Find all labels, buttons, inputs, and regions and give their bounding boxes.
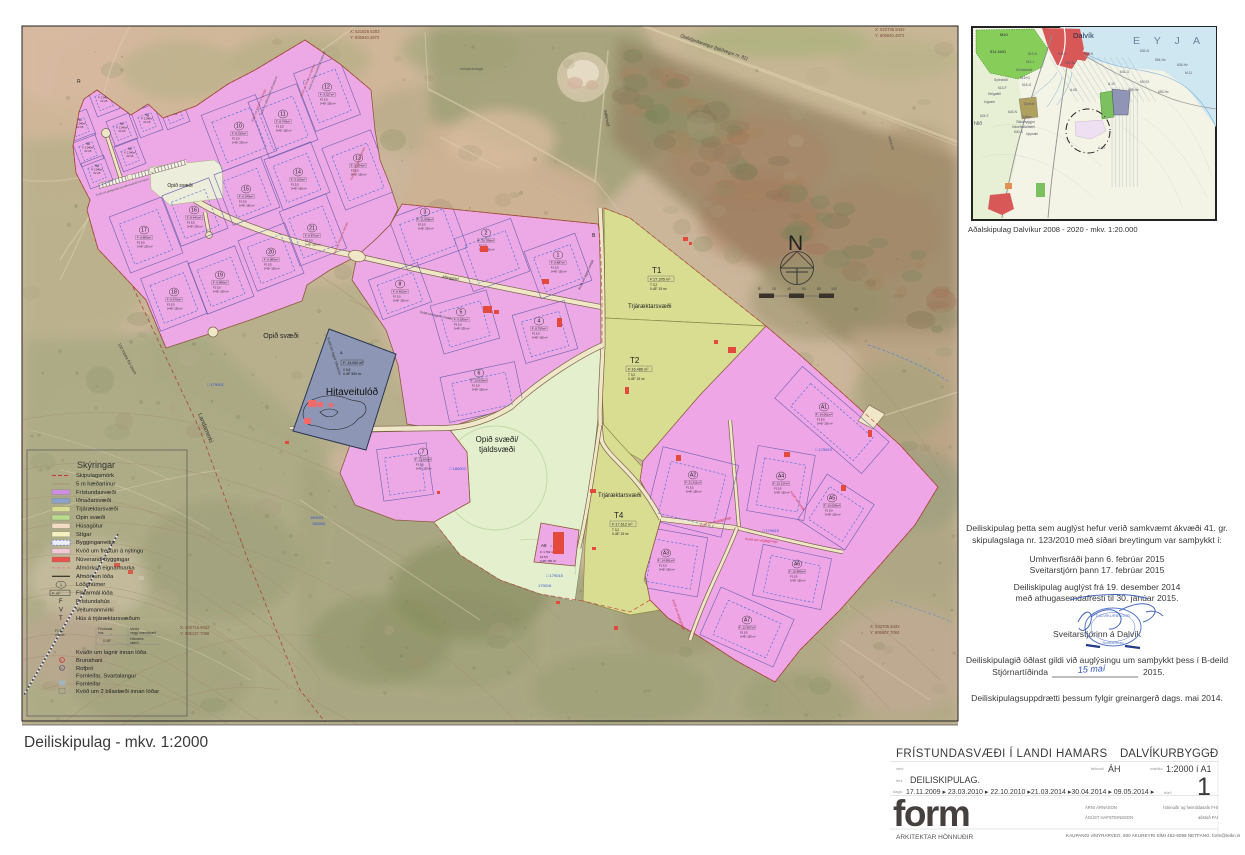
svg-text:F2 4,5: F2 4,5: [119, 130, 126, 133]
svg-text:Skíðastaðir: Skíðastaðir: [1016, 67, 1033, 72]
svg-text:F: 8.750m²: F: 8.750m²: [532, 327, 547, 331]
svg-text:0-45° 150 m²: 0-45° 150 m²: [213, 290, 229, 294]
svg-text:A.10: A.10: [1098, 146, 1105, 150]
svg-text:179016: 179016: [538, 583, 552, 588]
svg-text:0-45° 230 m²: 0-45° 230 m²: [418, 227, 434, 231]
svg-text:0-45° 150 m²: 0-45° 150 m²: [393, 299, 409, 303]
svg-text:515+O: 515+O: [1020, 76, 1030, 80]
svg-text:F1 5,5: F1 5,5: [740, 631, 748, 635]
svg-text:Trjáræktarsvæði: Trjáræktarsvæði: [628, 303, 671, 310]
svg-text:F: 10.786m²: F: 10.786m²: [478, 239, 494, 243]
svg-text:X: 502715.9432: X: 502715.9432: [180, 625, 210, 630]
svg-text:0-45° 150 m²: 0-45° 150 m²: [264, 267, 280, 271]
svg-text:□ 179613: □ 179613: [815, 447, 833, 452]
svg-text:völ hm: völ hm: [55, 633, 65, 637]
svg-text:F2 4,5: F2 4,5: [85, 150, 92, 153]
svg-text:hönnuðir og heimildasafn FHI: hönnuðir og heimildasafn FHI: [1163, 805, 1218, 810]
svg-text:F1 5,5: F1 5,5: [393, 295, 401, 299]
svg-text:0-45° 230 m²: 0-45° 230 m²: [232, 141, 248, 145]
svg-text:F1 5,5: F1 5,5: [551, 266, 559, 270]
svg-text:MY.03: MY.03: [1140, 80, 1149, 84]
svg-text:R: R: [77, 79, 81, 85]
svg-text:F: 6.989m²: F: 6.989m²: [213, 281, 228, 285]
svg-text:□ 179001: □ 179001: [207, 382, 225, 387]
svg-text:9c: 9c: [78, 118, 82, 122]
svg-text:ARKITEKTAR HÖNNUÐIR: ARKITEKTAR HÖNNUÐIR: [896, 833, 973, 841]
svg-text:655-Hv: 655-Hv: [1128, 88, 1139, 92]
svg-text:Dyrhóll: Dyrhóll: [1024, 102, 1035, 106]
svg-text:F:27.205 m²: F:27.205 m²: [650, 278, 671, 282]
svg-text:F: 21.411m²: F: 21.411m²: [685, 481, 701, 485]
svg-text:með athugasemdafresti til 30.: með athugasemdafresti til 30. janúar 201…: [1016, 593, 1179, 603]
svg-text:Afmörkun eignarmarka: Afmörkun eignarmarka: [76, 565, 135, 571]
svg-text:KAUPANGI v/MÝRARVEG, 600 AKURE: KAUPANGI v/MÝRARVEG, 600 AKUREYRI SÍMI 4…: [1066, 832, 1241, 838]
svg-text:Hitaveitulóð: Hitaveitulóð: [326, 386, 379, 398]
svg-text:ÁRNI ÁRNASON: ÁRNI ÁRNASON: [1085, 805, 1117, 810]
svg-text:A5: A5: [829, 496, 835, 502]
svg-text:F2 4,5: F2 4,5: [144, 121, 151, 124]
svg-text:9e: 9e: [120, 122, 124, 126]
svg-text:form: form: [893, 793, 969, 834]
svg-text:X: 533705.9432: X: 533705.9432: [870, 624, 900, 629]
svg-text:Veitumannvirki: Veitumannvirki: [76, 607, 114, 613]
svg-text:Stjórnartíðinda: Stjórnartíðinda: [992, 667, 1048, 677]
svg-text:A3: A3: [663, 551, 669, 557]
svg-text:Skýringar: Skýringar: [77, 460, 115, 470]
svg-text:3: 3: [424, 210, 427, 216]
svg-text:F: 14.981m²: F: 14.981m²: [658, 559, 674, 563]
svg-text:blað: blað: [1164, 790, 1172, 795]
svg-text:ÁH: ÁH: [1108, 764, 1121, 774]
svg-text:F: 10.880m²: F: 10.880m²: [789, 570, 805, 574]
svg-text:18: 18: [171, 290, 177, 296]
svg-text:636-Hv: 636-Hv: [1177, 63, 1188, 67]
svg-text:Fornleifar, Svartalangur: Fornleifar, Svartalangur: [76, 674, 136, 680]
svg-text:Trjáræktarsvæði: Trjáræktarsvæði: [76, 506, 118, 513]
svg-text:17: 17: [141, 228, 147, 234]
svg-text:16: 16: [191, 208, 197, 214]
svg-text:0-45° 230 m²: 0-45° 230 m²: [137, 245, 153, 249]
svg-text:9e: 9e: [128, 147, 132, 151]
svg-text:0-45° 150 m²: 0-45° 150 m²: [239, 204, 255, 208]
svg-text:F: 14.000 m²: F: 14.000 m²: [343, 361, 364, 365]
svg-text:0-45° 150 m²: 0-45° 150 m²: [740, 635, 756, 639]
svg-text:20: 20: [268, 250, 274, 256]
svg-text:F: 8.860m²: F: 8.860m²: [137, 236, 152, 240]
svg-text:613-F: 613-F: [998, 86, 1007, 90]
svg-text:641-G: 641-G: [1120, 70, 1130, 74]
svg-text:15 maí: 15 maí: [1077, 663, 1107, 675]
svg-text:0-45° 150 m²: 0-45° 150 m²: [817, 422, 833, 426]
svg-text:DALVÍKURBYGGÐ: DALVÍKURBYGGÐ: [1120, 747, 1218, 760]
svg-text:Opin svæði: Opin svæði: [76, 514, 105, 521]
svg-text:Frístundahús: Frístundahús: [76, 599, 110, 605]
svg-text:5: 5: [460, 310, 463, 316]
svg-text:Y: 605940.4972: Y: 605940.4972: [350, 35, 380, 40]
svg-text:F:16.486 m²: F:16.486 m²: [628, 368, 649, 372]
svg-text:19: 19: [217, 273, 223, 279]
svg-text:skipulagslaga nr. 123/2010 með: skipulagslaga nr. 123/2010 með síðari br…: [972, 535, 1222, 545]
svg-text:Sveitarfélag: Sveitarfélag: [1102, 640, 1123, 645]
svg-text:0-45° 150 m²: 0-45° 150 m²: [305, 243, 321, 247]
svg-text:tjaldsvæði: tjaldsvæði: [479, 445, 515, 454]
svg-text:20: 20: [772, 287, 776, 291]
svg-text:F2 5,5: F2 5,5: [454, 323, 462, 327]
svg-text:F1 5,5: F1 5,5: [416, 463, 424, 467]
svg-text:0: 0: [758, 287, 760, 291]
svg-text:21: 21: [309, 226, 315, 232]
svg-text:F2 5,5: F2 5,5: [418, 223, 426, 227]
svg-text:F2 4,5: F2 4,5: [94, 172, 101, 175]
svg-text:F: 5.105m²: F: 5.105m²: [291, 178, 306, 182]
svg-text:T4: T4: [614, 511, 624, 520]
svg-text:Rotþró: Rotþró: [76, 666, 93, 672]
svg-text:1: 1: [557, 253, 560, 259]
svg-text:8: 8: [399, 282, 402, 288]
svg-text:Sakka: Sakka: [1022, 115, 1031, 119]
svg-text:1: 1: [60, 583, 62, 587]
svg-text:F2 4,5: F2 4,5: [77, 126, 84, 129]
svg-text:Deiliskipulag þetta sem auglýs: Deiliskipulag þetta sem auglýst hefur ve…: [966, 523, 1228, 533]
svg-text:632-N: 632-N: [1140, 49, 1150, 53]
svg-text:Flatarmál lóða: Flatarmál lóða: [76, 590, 114, 597]
svg-text:Öldubryggjur: Öldubryggjur: [1016, 120, 1036, 124]
svg-text:F1 5,5: F1 5,5: [472, 384, 480, 388]
svg-text:Helgafell: Helgafell: [988, 92, 1001, 96]
svg-text:DEILISKIPULAG.: DEILISKIPULAG.: [910, 775, 980, 785]
svg-text:0-45° 150 m²: 0-45° 150 m²: [790, 579, 806, 583]
svg-text:0-45° 150 m²: 0-45° 150 m²: [774, 491, 790, 495]
svg-text:F1 5,5: F1 5,5: [320, 98, 328, 102]
svg-text:0-45° 150 m²: 0-45° 150 m²: [167, 307, 183, 311]
svg-text:F1 5,5: F1 5,5: [291, 183, 299, 187]
svg-text:0-45° 150 m²: 0-45° 150 m²: [825, 513, 841, 517]
svg-text:0-45° 15 m²: 0-45° 15 m²: [650, 287, 667, 291]
svg-text:hús: hús: [98, 631, 104, 635]
svg-text:640-S: 640-S: [1014, 130, 1024, 134]
svg-text:F: 9.327m²: F: 9.327m²: [320, 93, 335, 97]
svg-text:DALVÍKURBYGGÐ: DALVÍKURBYGGÐ: [1096, 613, 1130, 618]
svg-text:0-45° 150 m²: 0-45° 150 m²: [686, 490, 702, 494]
svg-text:Innastutulaga: Innastutulaga: [460, 67, 484, 71]
svg-text:mælikv.: mælikv.: [1150, 766, 1163, 771]
svg-text:Y: 605137.7098: Y: 605137.7098: [180, 631, 210, 636]
svg-text:F: 1.762 m²: F: 1.762 m²: [540, 550, 554, 554]
svg-text:□ 180002: □ 180002: [449, 466, 467, 471]
svg-text:80: 80: [817, 287, 821, 291]
svg-text:M10: M10: [1000, 32, 1009, 37]
svg-text:Stígar: Stígar: [76, 532, 92, 538]
svg-text:E Y J A: E Y J A: [1133, 35, 1206, 47]
svg-text:600-Nv: 600-Nv: [1065, 61, 1076, 65]
svg-text:Hánefsstaðafell: Hánefsstaðafell: [1012, 124, 1035, 129]
svg-text:Opið svæði: Opið svæði: [167, 182, 192, 189]
svg-text:60: 60: [802, 287, 806, 291]
svg-text:F: 9.185m²: F: 9.185m²: [454, 318, 469, 322]
svg-text:Fornleifar: Fornleifar: [76, 681, 101, 687]
svg-text:Núverandi byggingar: Núverandi byggingar: [76, 557, 130, 563]
svg-text:F: 8.339m²: F: 8.339m²: [232, 132, 247, 136]
svg-text:2015.: 2015.: [1143, 667, 1165, 677]
svg-text:F: 8.749m²: F: 8.749m²: [276, 120, 291, 124]
svg-text:Iðnaðarsvæði: Iðnaðarsvæði: [76, 497, 111, 504]
svg-text:F: 13.603m²: F: 13.603m²: [415, 458, 431, 462]
svg-text:F: 10.009m²: F: 10.009m²: [824, 504, 840, 508]
svg-text:Húsagötur: Húsagötur: [76, 523, 103, 529]
svg-text:F: 6.402m²: F: 6.402m²: [393, 290, 408, 294]
svg-text:aðstoð FAI: aðstoð FAI: [1198, 815, 1218, 820]
svg-text:F1 5,5: F1 5,5: [817, 418, 825, 422]
svg-text:0-45° 230 m²: 0-45° 230 m²: [187, 225, 203, 229]
svg-text:ÁGÚST HAFSTEINSSON: ÁGÚST HAFSTEINSSON: [1085, 815, 1133, 820]
svg-text:F1 5,5: F1 5,5: [232, 137, 240, 141]
svg-text:F1 5,5: F1 5,5: [239, 200, 247, 204]
svg-text:0-45° 150 m²: 0-45° 150 m²: [320, 102, 336, 106]
svg-text:Brunahani: Brunahani: [76, 658, 102, 664]
svg-text:F: F: [59, 599, 63, 605]
svg-text:1: 1: [1197, 773, 1211, 801]
svg-text:A.08: A.08: [1070, 88, 1077, 92]
svg-text:V: V: [59, 607, 63, 613]
svg-text:11: 11: [280, 112, 285, 118]
svg-text:Trjáræktarsvæði: Trjáræktarsvæði: [598, 492, 641, 499]
svg-text:Y: 605940.4972: Y: 605940.4972: [875, 33, 905, 38]
svg-text:□ 179015: □ 179015: [546, 573, 564, 578]
svg-text:Opið svæði: Opið svæði: [263, 332, 299, 340]
svg-text:9g: 9g: [145, 113, 149, 117]
svg-text:Frístundasvæði: Frístundasvæði: [76, 489, 116, 496]
svg-text:vegg/ mænishæð: vegg/ mænishæð: [130, 630, 156, 635]
svg-text:643-I: 643-I: [1058, 52, 1066, 56]
svg-text:F: 6.248m²: F: 6.248m²: [239, 195, 254, 199]
svg-text:hlíð: hlíð: [974, 120, 982, 127]
svg-text:516-G: 516-G: [1022, 83, 1032, 87]
svg-text:F: m²: F: m²: [52, 592, 61, 596]
svg-text:Skipulagsmörk: Skipulagsmörk: [76, 473, 114, 479]
svg-text:F1 5,5: F1 5,5: [137, 241, 145, 245]
svg-text:0-45° 150 m²: 0-45° 150 m²: [540, 559, 556, 563]
svg-text:F: 8.441m²: F: 8.441m²: [187, 216, 202, 220]
svg-text:0-45° 15 m²: 0-45° 15 m²: [612, 532, 629, 536]
svg-text:Deiliskipulag - mkv. 1:2000: Deiliskipulag - mkv. 1:2000: [24, 734, 208, 751]
svg-text:2: 2: [485, 231, 488, 237]
svg-text:efni: efni: [896, 778, 903, 783]
svg-text:F1 5,5: F1 5,5: [167, 303, 175, 307]
svg-text:F1 5,5: F1 5,5: [276, 125, 284, 129]
svg-text:624-F: 624-F: [980, 114, 989, 118]
svg-text:X: 521825.5203: X: 521825.5203: [350, 29, 380, 34]
svg-text:Umhverfisráði þann 6. febrúar: Umhverfisráði þann 6. febrúar 2015: [1029, 554, 1164, 564]
svg-text:0-45° 150 m²: 0-45° 150 m²: [532, 336, 548, 340]
svg-text:0-45° 150 m²: 0-45° 150 m²: [551, 270, 567, 274]
svg-text:14: 14: [295, 170, 301, 176]
svg-text:F: 6.670m²: F: 6.670m²: [167, 298, 182, 302]
svg-text:A6: A6: [794, 562, 800, 568]
svg-text:teiknað: teiknað: [1091, 766, 1105, 771]
svg-text:Dalvík: Dalvík: [1073, 31, 1094, 40]
svg-text:653-Hv: 653-Hv: [1158, 90, 1169, 94]
svg-text:A1: A1: [821, 405, 827, 411]
svg-text:F1 5,5: F1 5,5: [825, 509, 833, 513]
svg-text:0-45° 150 m²: 0-45° 150 m²: [291, 187, 307, 191]
svg-text:F1 5,5: F1 5,5: [659, 564, 667, 568]
svg-text:180003: 180003: [310, 515, 324, 520]
svg-text:F: 11.858m²: F: 11.858m²: [417, 218, 433, 222]
svg-text:A8: A8: [541, 543, 547, 548]
svg-text:648-N: 648-N: [1084, 52, 1094, 56]
svg-text:0-45° 15 m²: 0-45° 15 m²: [628, 377, 645, 381]
svg-text:511-NöO: 511-NöO: [990, 49, 1006, 54]
svg-text:F: 6.980m²: F: 6.980m²: [264, 258, 279, 262]
svg-text:Ingvarir: Ingvarir: [984, 100, 996, 104]
svg-text:F1 5,5: F1 5,5: [774, 487, 782, 491]
svg-text:F: 8.887m²: F: 8.887m²: [551, 261, 566, 265]
svg-text:□ 179615: □ 179615: [762, 528, 780, 533]
svg-text:verk: verk: [896, 766, 904, 771]
svg-text:4: 4: [538, 319, 541, 325]
svg-text:Uppsalir: Uppsalir: [1026, 132, 1039, 136]
svg-text:0-45° 150 m²: 0-45° 150 m²: [416, 467, 432, 471]
svg-text:A7: A7: [744, 618, 750, 624]
svg-text:F2 4,5: F2 4,5: [101, 100, 108, 103]
svg-text:Kvöð um 2 bílastæði innan lóða: Kvöð um 2 bílastæði innan lóðar: [76, 688, 159, 695]
svg-text:Deiliskipulagsuppdrætti þessum: Deiliskipulagsuppdrætti þessum fylgir gr…: [971, 693, 1223, 703]
svg-text:Byggingarreitur: Byggingarreitur: [76, 540, 115, 546]
svg-text:10: 10: [236, 124, 242, 130]
svg-text:stærð: stærð: [130, 640, 139, 645]
svg-text:40: 40: [787, 287, 791, 291]
svg-text:180005: 180005: [312, 521, 326, 526]
svg-text:F2 4,5: F2 4,5: [127, 155, 134, 158]
svg-text:654-Hv: 654-Hv: [1155, 58, 1166, 62]
svg-text:9b: 9b: [86, 142, 90, 146]
svg-text:Y: 606607.7092: Y: 606607.7092: [870, 630, 900, 635]
svg-text:F: 12.857m²: F: 12.857m²: [739, 626, 755, 630]
svg-text:F: 10.137m²: F: 10.137m²: [773, 482, 789, 486]
svg-text:0-45° 150 m²: 0-45° 150 m²: [472, 388, 488, 392]
svg-text:F: 10.630m²: F: 10.630m²: [471, 379, 487, 383]
svg-text:0-45°: 0-45°: [103, 639, 112, 643]
svg-text:12: 12: [324, 85, 330, 91]
svg-text:T: T: [59, 616, 63, 622]
svg-text:0-45° 230 m²: 0-45° 230 m²: [454, 327, 470, 331]
svg-text:X: 522735.9432: X: 522735.9432: [875, 27, 905, 32]
svg-text:Hús á trjáræktarsvæðum: Hús á trjáræktarsvæðum: [76, 615, 140, 622]
svg-text:F: 6.871m²: F: 6.871m²: [305, 234, 320, 238]
svg-text:100: 100: [831, 287, 837, 291]
svg-text:5 m hæðarlínur: 5 m hæðarlínur: [76, 480, 115, 487]
svg-text:T2: T2: [630, 356, 640, 365]
svg-text:F1 5,5: F1 5,5: [187, 221, 195, 225]
svg-text:Kvöð um frestun á nýtingu: Kvöð um frestun á nýtingu: [76, 548, 143, 555]
svg-text:7: 7: [422, 450, 425, 456]
svg-text:F:17.612 m²: F:17.612 m²: [612, 523, 633, 527]
svg-text:F: 14.661m²: F: 14.661m²: [816, 413, 832, 417]
svg-text:M.11: M.11: [1185, 71, 1192, 75]
svg-text:FRÍSTUNDASVÆÐI Í LANDI HAMARS: FRÍSTUNDASVÆÐI Í LANDI HAMARS: [896, 747, 1108, 760]
svg-text:B: B: [61, 659, 63, 663]
svg-text:A4: A4: [778, 474, 784, 480]
svg-text:Lóðanúmer: Lóðanúmer: [76, 581, 105, 588]
svg-text:F1 5,5: F1 5,5: [532, 332, 540, 336]
svg-text:F1 5,5: F1 5,5: [305, 239, 313, 243]
svg-text:T1: T1: [652, 266, 662, 275]
svg-text:F1 5,5: F1 5,5: [790, 575, 798, 579]
svg-text:A2: A2: [690, 473, 696, 479]
svg-text:Sveitarstjórn þann 17. febrúar: Sveitarstjórn þann 17. febrúar 2015: [1030, 565, 1165, 575]
svg-text:643-N: 643-N: [1008, 110, 1018, 114]
svg-text:6: 6: [478, 371, 481, 377]
svg-text:Opið svæði/: Opið svæði/: [476, 435, 519, 444]
svg-text:F1 5,5: F1 5,5: [264, 263, 272, 267]
svg-text:15: 15: [243, 187, 249, 193]
svg-text:0-45° 500 m²: 0-45° 500 m²: [343, 372, 361, 376]
svg-text:9a: 9a: [95, 164, 99, 168]
svg-text:A.10: A.10: [1108, 82, 1115, 86]
svg-text:Deiliskipulag auglýst frá 19.: Deiliskipulag auglýst frá 19. desember 2…: [1014, 582, 1181, 592]
svg-text:Kvaðir um lagnir innan lóða: Kvaðir um lagnir innan lóða: [76, 649, 147, 656]
svg-text:F1 5,5: F1 5,5: [213, 286, 221, 290]
svg-text:Syðrahóll: Syðrahóll: [994, 77, 1008, 82]
svg-text:Afmörkun lóða: Afmörkun lóða: [76, 573, 114, 580]
svg-text:F1 5,5: F1 5,5: [686, 486, 694, 490]
svg-text:513-N: 513-N: [1028, 52, 1038, 56]
svg-text:514-J: 514-J: [1026, 60, 1035, 64]
svg-text:0-45° 150 m²: 0-45° 150 m²: [276, 129, 292, 133]
svg-text:0-45° 150 m²: 0-45° 150 m²: [659, 568, 675, 572]
svg-text:Aðalskipulag Dalvíkur 2008 - 2: Aðalskipulag Dalvíkur 2008 - 2020 - mkv.…: [968, 225, 1138, 234]
svg-text:A: A: [340, 350, 343, 355]
